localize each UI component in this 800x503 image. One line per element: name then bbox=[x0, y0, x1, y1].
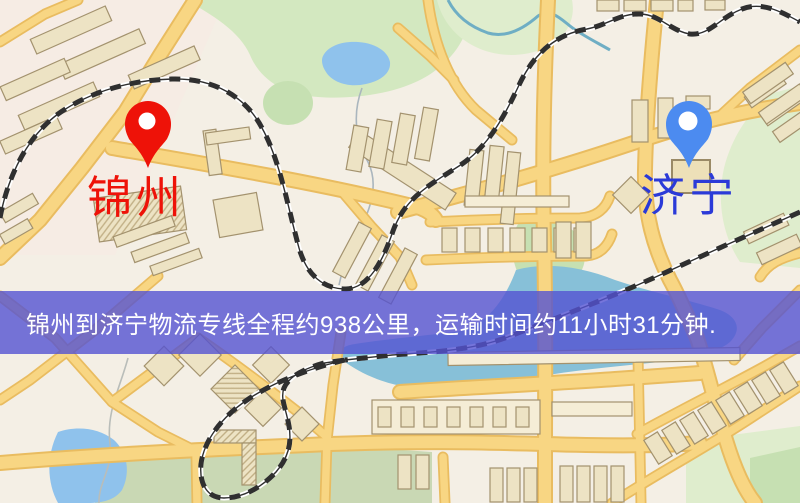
map-canvas[interactable] bbox=[0, 0, 800, 503]
map-container: 锦州 济宁 锦州到济宁物流专线全程约938公里，运输时间约11小时31分钟. bbox=[0, 0, 800, 503]
route-info-text: 锦州到济宁物流专线全程约938公里，运输时间约11小时31分钟. bbox=[26, 305, 716, 340]
destination-city-label: 济宁 bbox=[599, 174, 779, 219]
route-info-banner: 锦州到济宁物流专线全程约938公里，运输时间约11小时31分钟. bbox=[0, 291, 800, 354]
origin-city-label: 锦州 bbox=[46, 176, 226, 221]
